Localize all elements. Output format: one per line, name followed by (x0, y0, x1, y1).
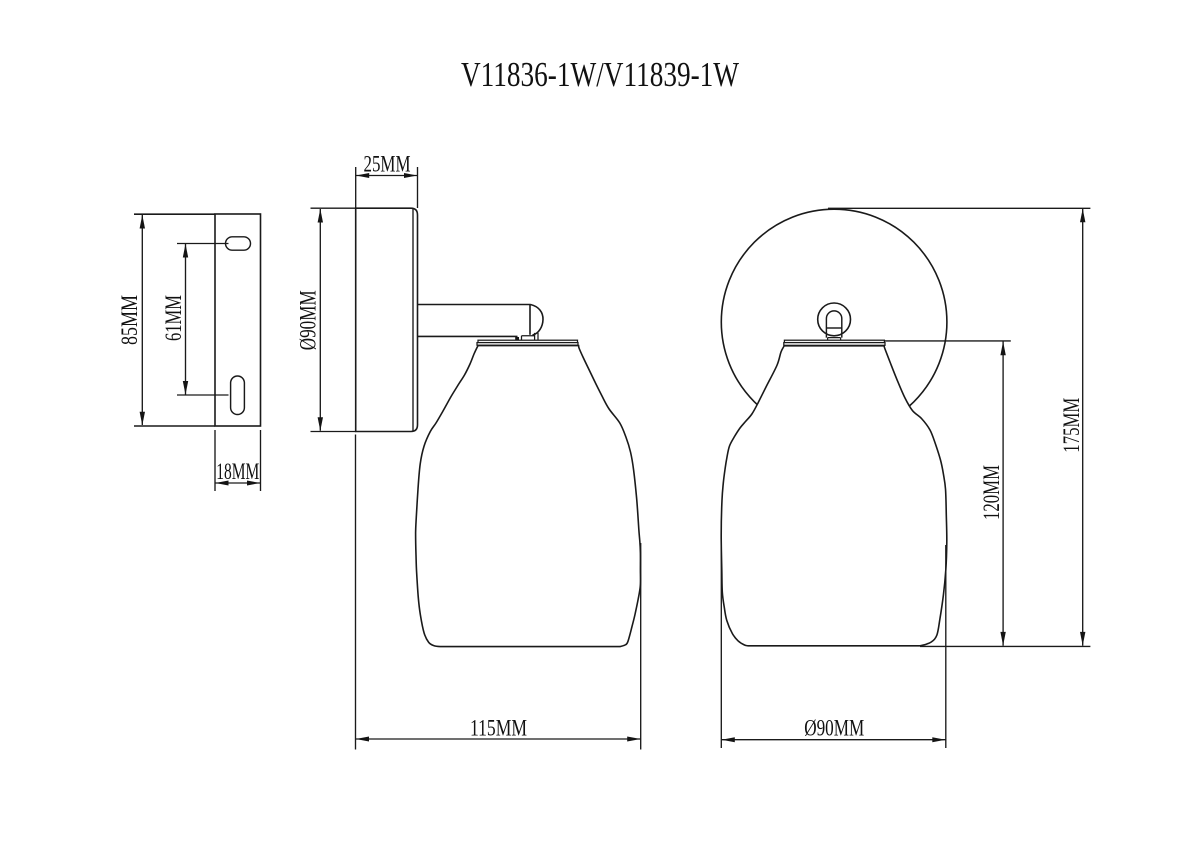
svg-text:V11836-1W/V11839-1W: V11836-1W/V11839-1W (461, 55, 739, 94)
svg-text:Ø90MM: Ø90MM (296, 290, 322, 350)
svg-text:Ø90MM: Ø90MM (804, 716, 864, 742)
svg-text:175MM: 175MM (1059, 398, 1085, 453)
svg-text:18MM: 18MM (216, 459, 259, 485)
svg-text:25MM: 25MM (364, 152, 411, 178)
svg-text:85MM: 85MM (117, 295, 143, 345)
svg-text:61MM: 61MM (161, 295, 187, 341)
svg-text:120MM: 120MM (979, 465, 1005, 520)
svg-text:115MM: 115MM (470, 716, 527, 742)
